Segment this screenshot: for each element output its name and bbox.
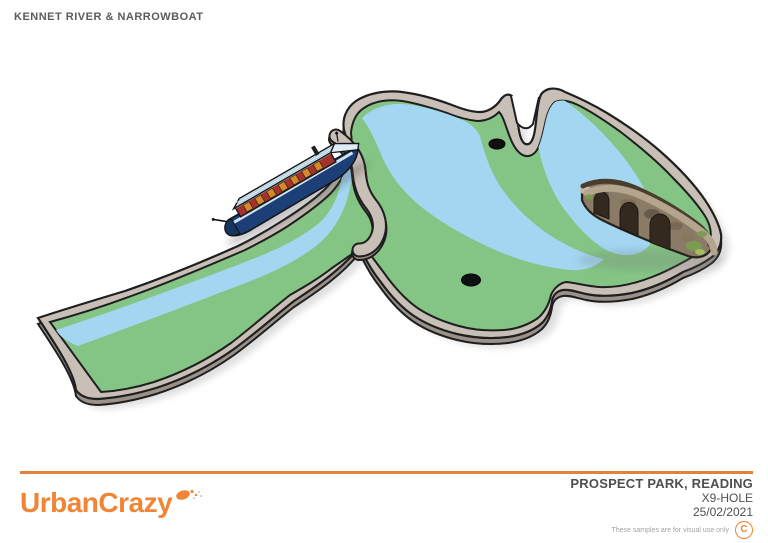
date: 25/02/2021 (570, 505, 753, 519)
project-info-block: PROSPECT PARK, READING X9-HOLE 25/02/202… (570, 476, 753, 539)
disclaimer-text: These samples are for visual use only (612, 527, 730, 534)
footer-accent-rule (20, 471, 753, 474)
brand-name: UrbanCrazy (20, 489, 172, 517)
copyright-icon: C (735, 521, 753, 539)
brand-logo: UrbanCrazy (20, 489, 206, 517)
hole-reference: X9-HOLE (570, 491, 753, 505)
hole-cup-2 (462, 274, 481, 286)
hole-plan-illustration (0, 0, 768, 543)
hole-cup-1 (489, 139, 505, 149)
boat-tiller-knob (211, 217, 215, 221)
boat-chimney (311, 146, 319, 156)
site-name: PROSPECT PARK, READING (570, 476, 753, 491)
logo-splat-icon (174, 487, 206, 512)
